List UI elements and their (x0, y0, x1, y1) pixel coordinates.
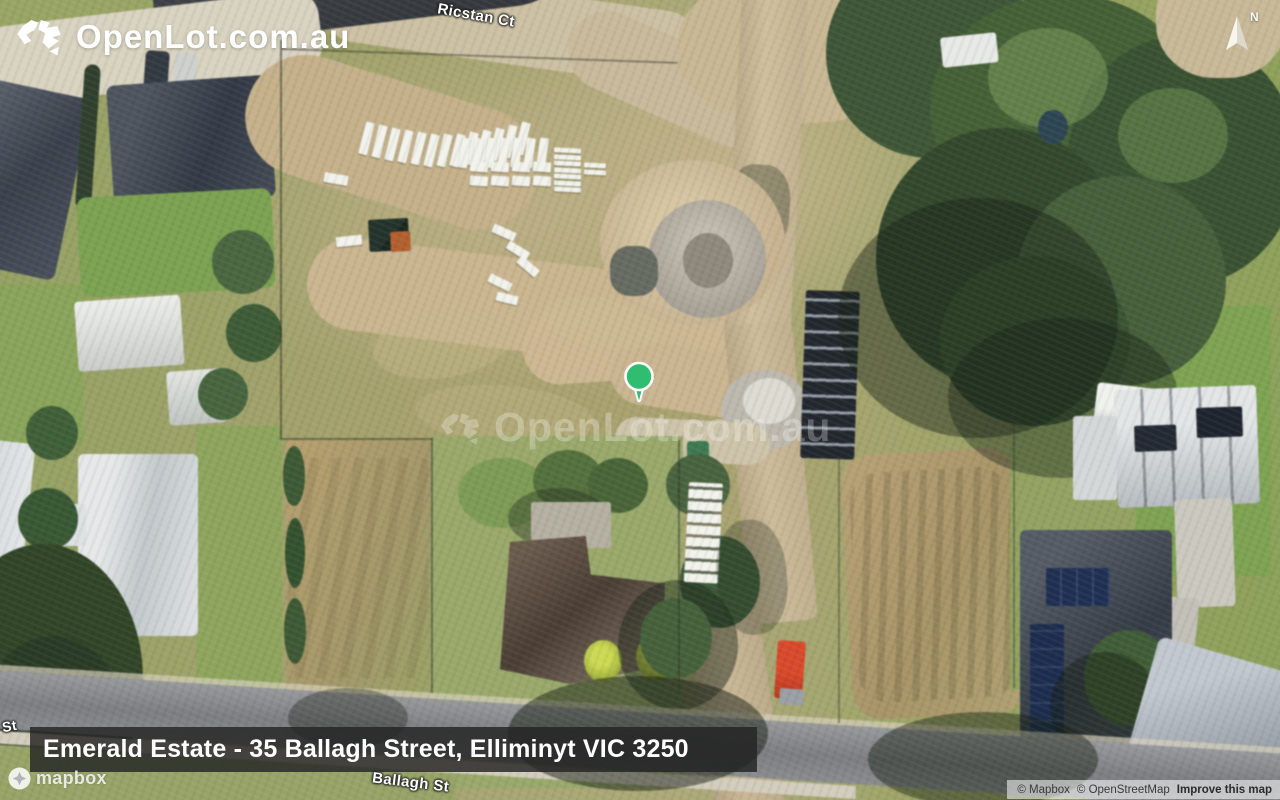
terrain-patch (196, 426, 282, 716)
logo-text: OpenLot.com.au (76, 18, 350, 56)
property-pin[interactable] (621, 360, 657, 406)
terrain-patch (284, 598, 306, 664)
construction-pallet (554, 167, 581, 173)
terrain-patch (743, 378, 795, 424)
construction-pallet (584, 162, 606, 168)
terrain-patch (288, 458, 428, 678)
construction-pallet (470, 161, 489, 172)
terrain-patch (1073, 416, 1117, 500)
terrain-patch (390, 231, 411, 252)
construction-pallet (512, 161, 531, 172)
openlot-logo: OpenLot.com.au (14, 14, 350, 59)
terrain-patch (1013, 358, 1015, 688)
terrain-patch (198, 368, 248, 420)
mapbox-logo-icon (8, 767, 31, 790)
mapbox-wordmark: mapbox (36, 768, 107, 789)
address-text: Emerald Estate - 35 Ballagh Street, Elli… (43, 735, 689, 764)
street-label-st-partial: St (1, 717, 18, 735)
map-view[interactable]: Ricstan Ct Ballagh St St OpenLot.com.au … (0, 0, 1280, 800)
terrain-patch (1174, 498, 1236, 608)
terrain-patch (584, 640, 622, 682)
terrain-patch (282, 438, 432, 440)
terrain-patch (283, 446, 305, 506)
map-attribution: © Mapbox © OpenStreetMap Improve this ma… (1007, 780, 1280, 799)
terrain-patch (1134, 425, 1177, 452)
terrain-patch (285, 518, 305, 588)
construction-pallet (554, 180, 581, 186)
terrain-patch (431, 438, 433, 693)
terrain-patch (280, 40, 282, 440)
terrain-patch (226, 304, 282, 362)
construction-pallet (533, 175, 552, 186)
terrain-patch (1118, 88, 1228, 183)
mapbox-logo[interactable]: mapbox (8, 767, 107, 790)
construction-pallet (584, 169, 606, 175)
terrain-patch (1038, 110, 1068, 144)
attribution-osm-link[interactable]: © OpenStreetMap (1077, 784, 1170, 796)
construction-pallet (512, 175, 531, 186)
terrain-patch (640, 598, 712, 678)
australia-logo-icon (14, 14, 66, 59)
terrain-patch (1046, 568, 1110, 606)
pin-head (626, 363, 653, 390)
terrain-patch (18, 488, 78, 550)
terrain-patch (838, 458, 840, 723)
north-indicator: N (1224, 16, 1270, 60)
construction-pallet (470, 175, 489, 186)
attribution-mapbox-link[interactable]: © Mapbox (1017, 784, 1070, 796)
terrain-patch (779, 688, 804, 706)
terrain-patch (610, 246, 658, 296)
terrain-patch (683, 233, 733, 288)
address-bar: Emerald Estate - 35 Ballagh Street, Elli… (30, 727, 757, 772)
construction-pallet (491, 175, 510, 186)
construction-pallet (491, 161, 510, 172)
construction-pallet (554, 154, 581, 160)
terrain-patch (212, 230, 274, 294)
construction-pallet (533, 161, 552, 172)
terrain-patch (678, 440, 680, 690)
north-label: N (1250, 10, 1259, 24)
terrain-patch (74, 295, 185, 372)
terrain-patch (1196, 406, 1243, 438)
improve-map-link[interactable]: Improve this map (1177, 784, 1272, 796)
terrain-patch (26, 406, 78, 460)
terrain-patch (848, 466, 1020, 704)
terrain-patch (940, 32, 999, 68)
